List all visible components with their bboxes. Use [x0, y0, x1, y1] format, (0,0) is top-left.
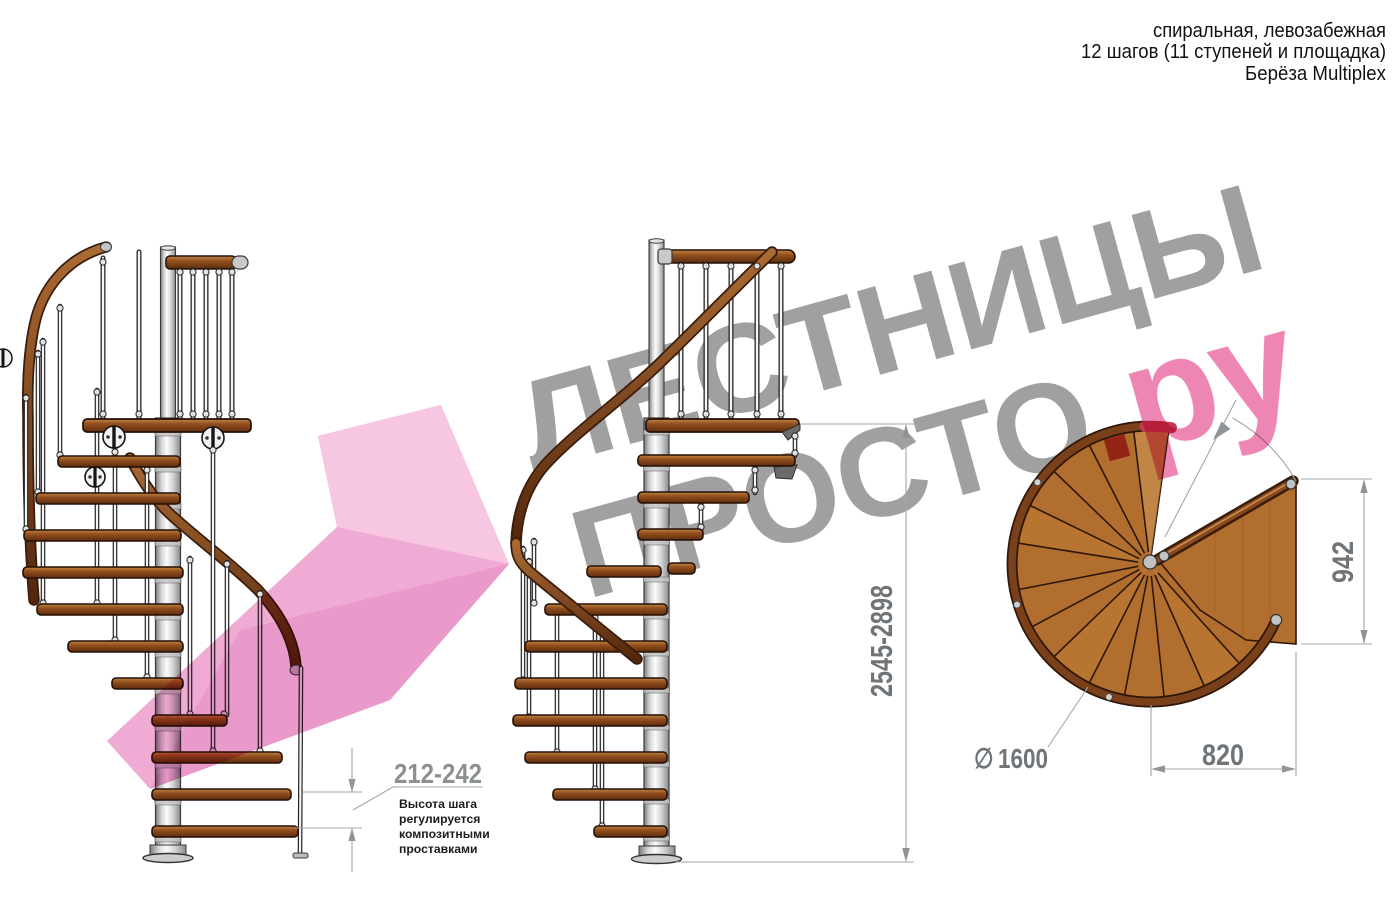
svg-text:∅ 1600: ∅ 1600 — [974, 743, 1048, 774]
svg-text:композитными: композитными — [399, 827, 490, 841]
svg-text:820: 820 — [1202, 739, 1244, 772]
svg-text:проставками: проставками — [399, 842, 478, 856]
svg-text:регулируется: регулируется — [399, 812, 480, 826]
svg-text:942: 942 — [1327, 541, 1360, 583]
svg-text:12 шагов (11 ступеней и площад: 12 шагов (11 ступеней и площадка) — [1081, 40, 1386, 63]
svg-text:спиральная, левозабежная: спиральная, левозабежная — [1153, 19, 1386, 42]
svg-text:2545-2898: 2545-2898 — [864, 585, 899, 697]
svg-text:Высота шага: Высота шага — [399, 797, 477, 811]
svg-text:212-242: 212-242 — [394, 758, 482, 789]
svg-text:Берёза Multiplex: Берёза Multiplex — [1245, 62, 1387, 85]
